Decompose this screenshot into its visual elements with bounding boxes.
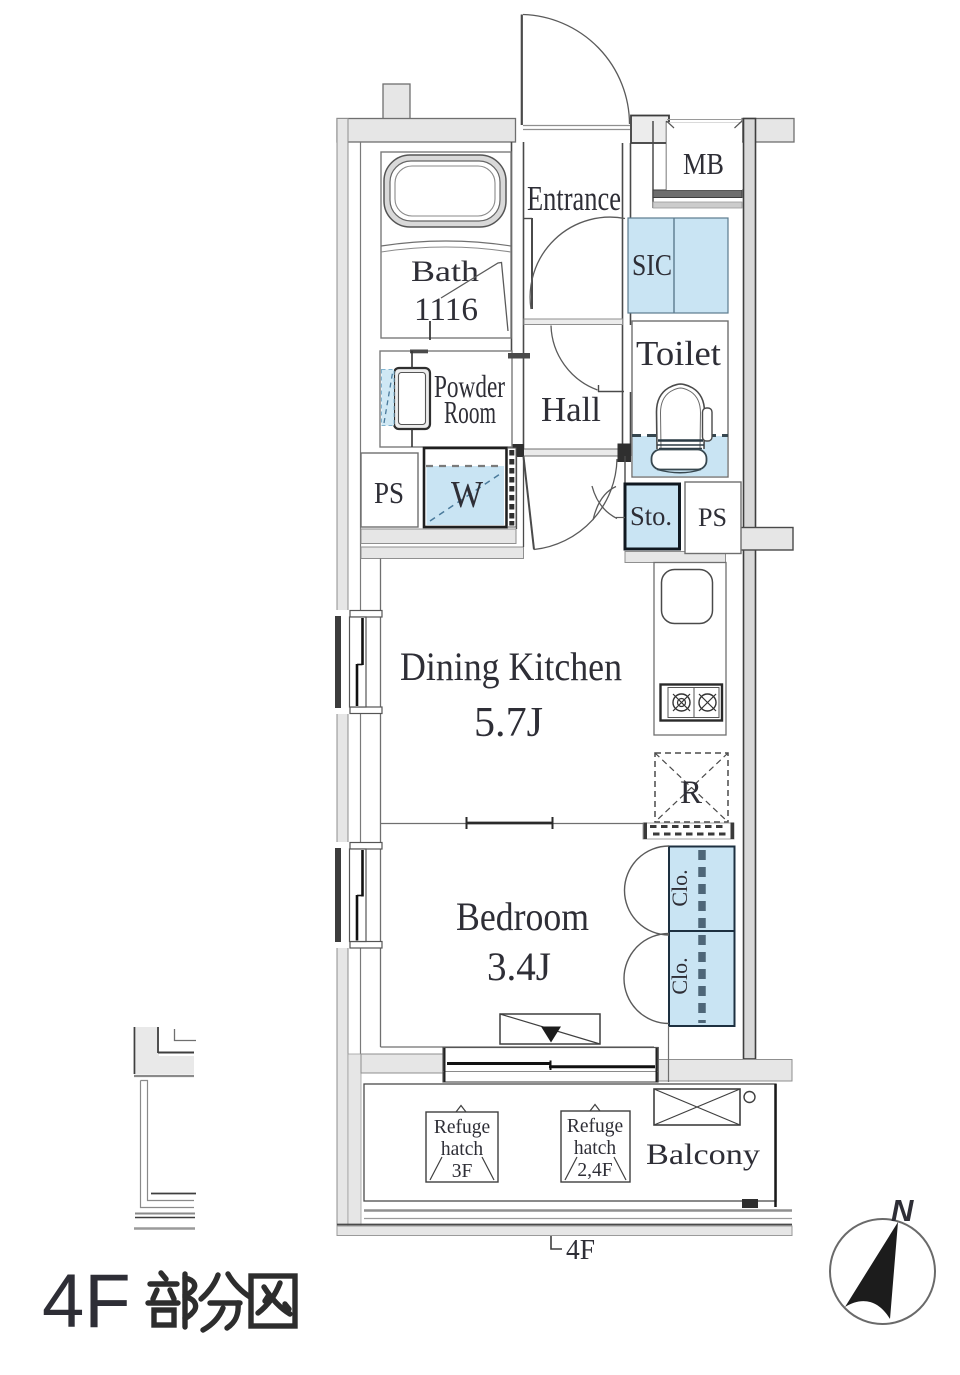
svg-text:Bedroom: Bedroom	[456, 894, 589, 939]
svg-text:Balcony: Balcony	[646, 1138, 760, 1171]
svg-text:SIC: SIC	[632, 247, 672, 282]
svg-text:4F: 4F	[42, 1259, 131, 1344]
svg-text:5.7J: 5.7J	[474, 700, 543, 746]
svg-text:hatch: hatch	[441, 1139, 483, 1160]
svg-text:PS: PS	[698, 503, 727, 532]
svg-text:2,4F: 2,4F	[577, 1160, 612, 1181]
svg-text:hatch: hatch	[574, 1138, 616, 1159]
svg-text:MB: MB	[683, 146, 724, 181]
svg-text:4F: 4F	[566, 1235, 595, 1266]
svg-text:Dining Kitchen: Dining Kitchen	[400, 644, 622, 689]
svg-text:N: N	[891, 1193, 914, 1228]
svg-text:Sto.: Sto.	[630, 501, 672, 531]
svg-text:W: W	[451, 474, 483, 516]
svg-text:PS: PS	[374, 475, 404, 510]
svg-text:Clo.: Clo.	[667, 957, 692, 994]
svg-text:1116: 1116	[414, 292, 478, 328]
svg-text:Entrance: Entrance	[527, 179, 621, 218]
svg-text:Clo.: Clo.	[667, 869, 692, 906]
svg-text:Toilet: Toilet	[636, 334, 721, 373]
svg-text:R: R	[680, 775, 702, 811]
svg-text:3.4J: 3.4J	[487, 944, 551, 989]
svg-text:Bath: Bath	[411, 255, 479, 288]
svg-text:Refuge: Refuge	[567, 1116, 623, 1137]
svg-text:3F: 3F	[452, 1161, 473, 1182]
svg-text:Hall: Hall	[541, 390, 601, 429]
svg-text:Refuge: Refuge	[434, 1117, 490, 1138]
svg-text:Room: Room	[444, 394, 496, 430]
